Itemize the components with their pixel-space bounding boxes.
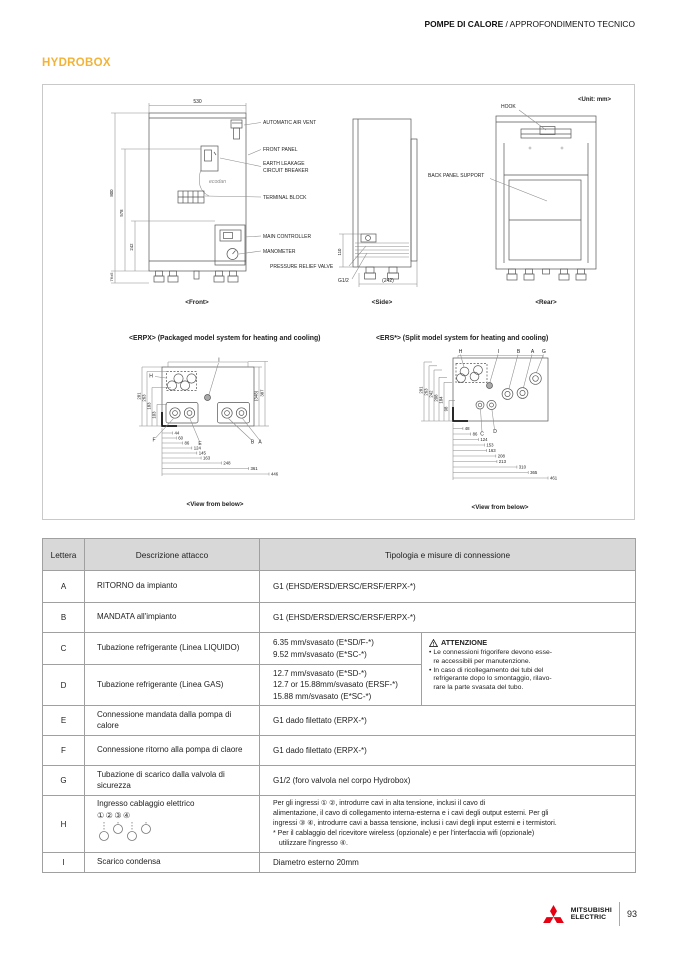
svg-text:86: 86 [473,432,478,437]
dim-530: 530 [193,99,202,105]
attention-bullet: •Le connessioni frigorifere devono esse-… [429,649,628,666]
table-row: A RITORNO da impianto G1 (EHSD/ERSD/ERSC… [43,571,636,603]
row-letter: G [43,766,85,796]
technical-drawing-panel: ecodan 530 [42,84,635,520]
table-header-row: Lettera Descrizione attacco Tipologia e … [43,539,636,571]
row-connection: G1 (EHSD/ERSD/ERSC/ERSF/ERPX-*) [260,571,636,603]
front-caption: <Front> [185,299,209,306]
front-dimensions: 530 800 578 242 76±5 [109,99,246,283]
label-hook: HOOK [501,104,516,110]
svg-text:163: 163 [203,456,211,461]
row-description: Connessione ritorno alla pompa di claore [85,736,260,766]
page-title: HYDROBOX [42,57,111,69]
row-description: Tubazione refrigerante (Linea LIQUIDO) [85,633,260,665]
table-row: I Scarico condensa Diametro esterno 20mm [43,853,636,873]
svg-text:248: 248 [223,461,231,466]
ers-title: <ERS*> (Split model system for heating a… [376,335,548,342]
row-description: RITORNO da impianto [85,571,260,603]
breadcrumb-subsection: / APPROFONDIMENTO TECNICO [503,19,635,29]
svg-text:48: 48 [465,426,470,431]
svg-text:!: ! [433,641,435,646]
row-letter: B [43,603,85,633]
row-connection: G1 (EHSD/ERSD/ERSC/ERSF/ERPX-*) [260,603,636,633]
ers-left-dims: 281 263 242 208 184 98 [419,362,456,421]
table-row: H Ingresso cablaggio elettrico ①②③④ [43,796,636,853]
terminal-block-icon [178,191,204,203]
dim-800: 800 [109,189,114,197]
cable-entry-ports-diagram [97,822,155,842]
dim-242-side: (242) [382,278,394,284]
svg-text:A: A [258,440,262,446]
svg-text:184: 184 [439,396,444,404]
svg-text:H: H [149,374,153,380]
svg-text:461: 461 [550,476,558,481]
dim-110: 110 [337,248,342,255]
label-front-panel: FRONT PANEL [263,147,298,153]
label-g12: G1/2 [338,278,349,284]
svg-text:163: 163 [489,448,497,453]
svg-text:B: B [517,349,521,355]
dim-76: 76±5 [109,272,114,282]
svg-text:361: 361 [251,466,259,471]
warning-icon: ! [429,639,438,647]
erpx-right-dims: (348) 387 [248,362,269,427]
svg-text:124: 124 [480,437,488,442]
cable-entry-numbers: ①②③④ [97,811,253,821]
erpx-bottom-dims: 44 60 86 124 145 163 248 361 446 [162,428,279,476]
label-circuit-breaker: CIRCUIT BREAKER [263,168,309,174]
row-description: Tubazione refrigerante (Linea GAS) [85,665,260,706]
svg-text:60: 60 [178,436,183,441]
side-view-drawing: 110 (242) G1/2 <Side> [337,119,417,306]
ers-ports [457,366,542,410]
svg-text:213: 213 [499,459,507,464]
rear-view-drawing: HOOK BACK PANEL SUPPORT <Rear> <Unit: mm… [428,97,611,306]
row-connection: G1 dado filettato (ERPX-*) [260,706,636,736]
svg-text:183: 183 [147,402,152,410]
erpx-bottom-view: <ERPX> (Packaged model system for heatin… [129,335,320,508]
row-letter: C [43,633,85,665]
breadcrumb-section: POMPE DI CALORE [425,19,504,29]
row-connection: G1 dado filettato (ERPX-*) [260,736,636,766]
svg-text:B: B [251,440,255,446]
table-row: G Tubazione di scarico dalla valvola di … [43,766,636,796]
svg-text:446: 446 [271,471,279,476]
svg-text:H: H [459,349,463,355]
label-main-controller: MAIN CONTROLLER [263,234,311,240]
side-caption: <Side> [372,299,393,306]
row-letter: I [43,853,85,873]
footer-divider [619,902,620,926]
svg-text:(348): (348) [254,390,259,401]
label-air-vent: AUTOMATIC AIR VENT [263,120,316,126]
svg-text:A: A [531,349,535,355]
ecodan-logo: ecodan [209,179,226,185]
hook-icon [521,127,571,139]
brand-wordmark: MITSUBISHI ELECTRIC [571,907,612,922]
ers-bottom-dims: 48 86 124 153 163 208 213 310 36 [453,423,558,481]
svg-text:153: 153 [486,443,494,448]
erpx-title: <ERPX> (Packaged model system for heatin… [129,335,320,342]
column-header-descrizione: Descrizione attacco [85,539,260,571]
technical-drawing: ecodan 530 [43,85,634,519]
svg-text:387: 387 [260,389,265,397]
svg-text:103: 103 [152,411,157,419]
connections-table-section: Lettera Descrizione attacco Tipologia e … [42,538,636,873]
rear-caption: <Rear> [535,299,557,306]
column-header-lettera: Lettera [43,539,85,571]
page-number: 93 [627,909,637,919]
table-row: B MANDATA all'impianto G1 (EHSD/ERSD/ERS… [43,603,636,633]
dim-242: 242 [129,243,134,251]
ers-bottom-view: <ERS*> (Split model system for heating a… [376,335,558,511]
unit-note: <Unit: mm> [578,97,612,103]
row-letter: E [43,706,85,736]
front-view-drawing: ecodan 530 [109,99,366,306]
front-callouts: AUTOMATIC AIR VENT FRONT PANEL EARTH LEA… [205,120,366,270]
label-terminal-block: TERMINAL BLOCK [263,195,307,201]
row-description: Tubazione di scarico dalla valvola di si… [85,766,260,796]
controller-icon [215,225,245,265]
svg-text:310: 310 [519,465,527,470]
row-description: MANDATA all'impianto [85,603,260,633]
svg-text:365: 365 [530,470,538,475]
svg-text:208: 208 [498,454,506,459]
row-connection: 12.7 mm/svasato (E*SD-*) 12.7 or 15.88mm… [260,665,422,706]
row-connection: 6.35 mm/svasato (E*SD/F-*) 9.52 mm/svasa… [260,633,422,665]
rear-pipe-stubs [507,269,586,280]
row-connection: Per gli ingressi ① ②, introdurre cavi in… [260,796,636,853]
erpx-ports [166,374,250,423]
row-description: Ingresso cablaggio elettrico ①②③④ [85,796,260,853]
label-manometer: MANOMETER [263,249,296,255]
svg-text:263: 263 [142,394,147,402]
table-row: E Connessione mandata dalla pompa di cal… [43,706,636,736]
label-pressure-valve: PRESSURE RELIEF VALVE [270,264,334,270]
svg-text:98: 98 [444,406,449,411]
row-connection: Diametro esterno 20mm [260,853,636,873]
breaker-icon [201,146,218,171]
attention-title: ATTENZIONE [441,638,487,647]
svg-text:D: D [493,429,497,435]
row-connection: G1/2 (foro valvola nel corpo Hydrobox) [260,766,636,796]
ers-caption: <View from below> [472,504,529,511]
table-row: C Tubazione refrigerante (Linea LIQUIDO)… [43,633,636,665]
svg-text:F: F [152,438,155,444]
breadcrumb: POMPE DI CALORE / APPROFONDIMENTO TECNIC… [425,19,635,29]
mitsubishi-logo-icon [543,905,564,923]
column-header-tipologia: Tipologia e misure di connessione [260,539,636,571]
row-letter: F [43,736,85,766]
document-page: POMPE DI CALORE / APPROFONDIMENTO TECNIC… [0,0,677,958]
page-footer: MITSUBISHI ELECTRIC 93 [543,902,637,926]
row-letter: D [43,665,85,706]
attention-bullet: •In caso di ricollegamento dei tubi del … [429,667,628,693]
row-letter: A [43,571,85,603]
label-earth-leakage: EARTH LEAKAGE [263,161,305,167]
side-dimensions: 110 (242) G1/2 [337,234,417,287]
front-pipe-stubs [154,271,238,282]
air-vent-icon [231,120,242,139]
row-description: Scarico condensa [85,853,260,873]
svg-text:I: I [218,358,219,364]
row-description: Connessione mandata dalla pompa di calor… [85,706,260,736]
svg-text:G: G [542,349,546,355]
svg-text:I: I [498,349,499,355]
table-row: F Connessione ritorno alla pompa di clao… [43,736,636,766]
label-back-panel-support: BACK PANEL SUPPORT [428,173,484,179]
erpx-caption: <View from below> [187,501,244,508]
row-letter: H [43,796,85,853]
attention-note: ! ATTENZIONE •Le connessioni frigorifere… [422,633,636,706]
relief-valve-icon [361,234,376,242]
dim-578: 578 [119,209,124,217]
svg-text:86: 86 [185,441,190,446]
connections-table: Lettera Descrizione attacco Tipologia e … [42,538,636,873]
